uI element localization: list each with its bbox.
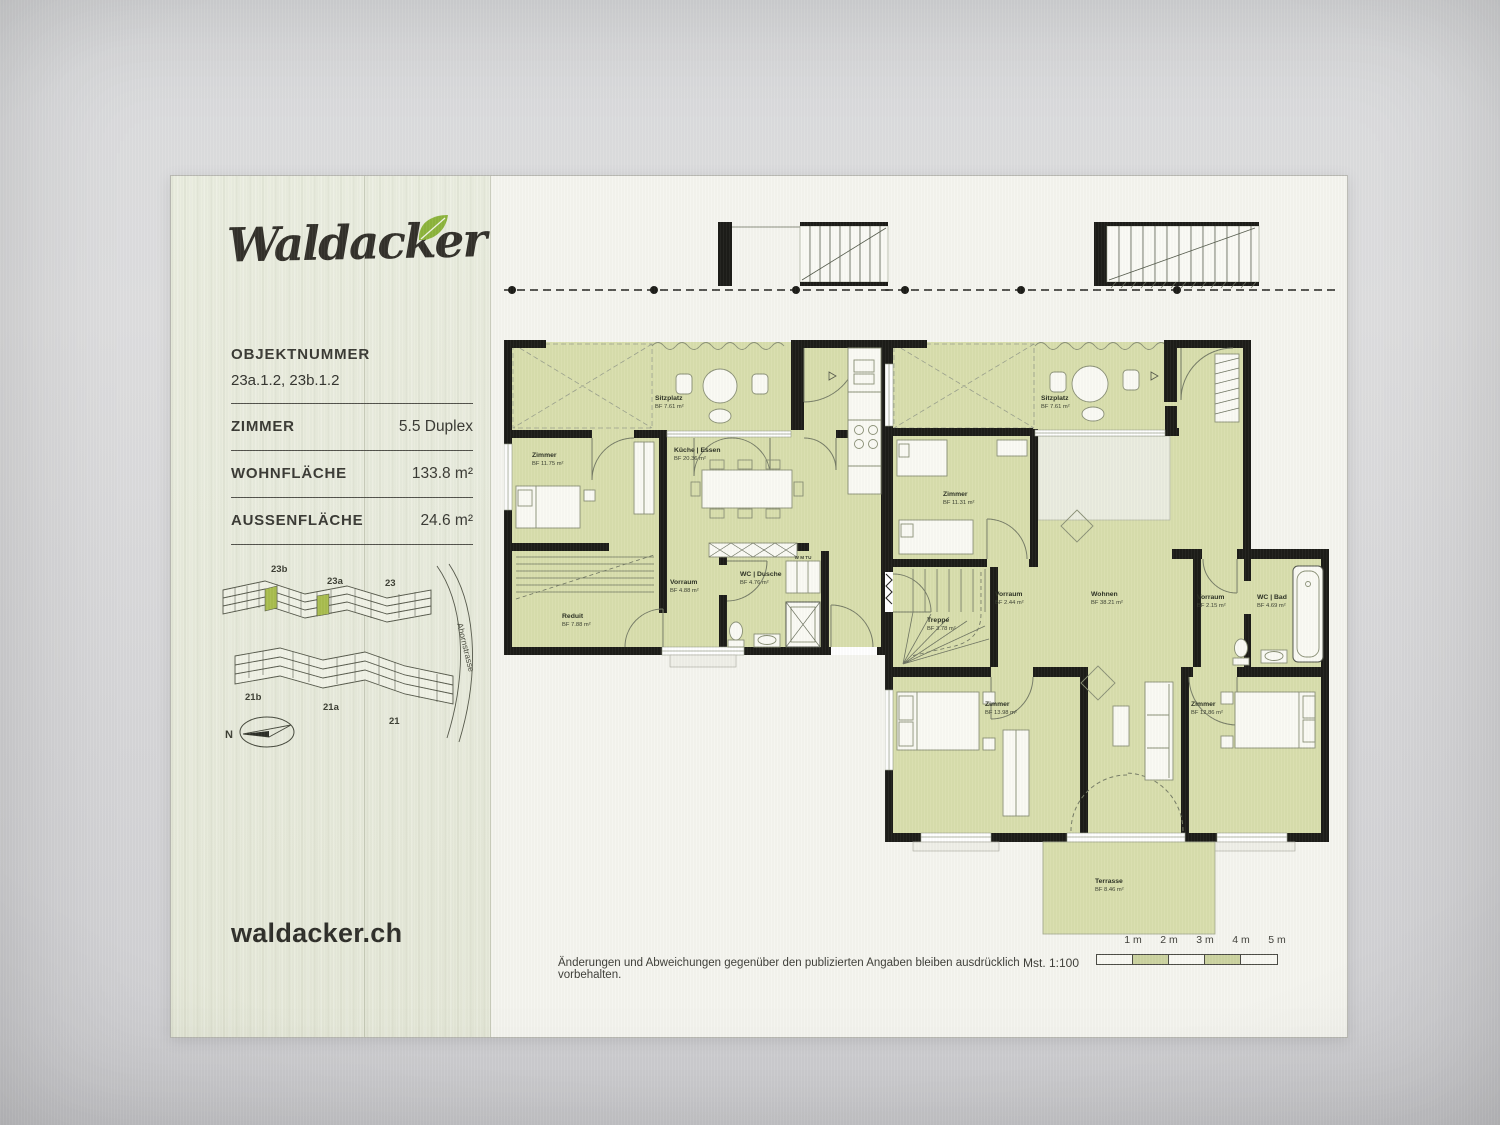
external-stair-icon	[718, 222, 888, 286]
building-label-21b: 21b	[245, 692, 262, 703]
street-curve	[437, 566, 460, 738]
room-label-vorraum2: Vorraum	[1197, 594, 1224, 601]
spec-row-zimmer: ZIMMER 5.5 Duplex	[231, 418, 473, 436]
sidebar-wood-panel: Waldacker OBJEKTNUMMER 23a.1.2, 23b.1.2 …	[171, 176, 491, 1037]
divider	[231, 497, 473, 498]
spec-row-aussenflaeche: AUSSENFLÄCHE 24.6 m²	[231, 512, 473, 530]
svg-text:BF 4.88 m²: BF 4.88 m²	[670, 588, 699, 594]
svg-text:BF 12.86 m²: BF 12.86 m²	[1191, 710, 1223, 716]
bathtub-icon	[1293, 566, 1323, 662]
toilet-icon	[728, 622, 744, 647]
building-label-23a: 23a	[327, 576, 344, 587]
room-label-zimmer: Zimmer	[943, 491, 968, 498]
photographed-screen: Waldacker OBJEKTNUMMER 23a.1.2, 23b.1.2 …	[0, 0, 1500, 1125]
toilet-icon	[1233, 639, 1249, 665]
svg-text:BF 11.75 m²: BF 11.75 m²	[532, 461, 564, 467]
street-label: Ahornstrasse	[455, 622, 477, 673]
svg-text:BF 13.98 m²: BF 13.98 m²	[985, 710, 1017, 716]
compass-icon: N	[225, 717, 294, 747]
spec-value: 24.6 m²	[420, 512, 473, 530]
room-label-wohnen: Wohnen	[1091, 591, 1118, 598]
washbasin-icon	[1261, 650, 1287, 663]
room-label-treppe: Treppe	[927, 617, 950, 624]
svg-text:BF 11.31 m²: BF 11.31 m²	[943, 500, 975, 506]
scale-mark: 3 m	[1191, 934, 1219, 946]
divider	[231, 544, 473, 545]
room-label-wc-bad: WC | Bad	[1257, 594, 1287, 601]
building-label-23: 23	[385, 578, 396, 589]
floor-plan-left: Sitzplatz BF 7.61 m² Zimmer BF 11.75 m² …	[504, 214, 889, 676]
scale-bar: 1 m 2 m 3 m 4 m 5 m	[1096, 934, 1279, 972]
svg-text:BF 7.61 m²: BF 7.61 m²	[1041, 404, 1070, 410]
scale-label: Mst. 1:100	[1023, 956, 1079, 970]
room-label-sitzplatz: Sitzplatz	[1041, 395, 1069, 402]
unit-info-table: OBJEKTNUMMER 23a.1.2, 23b.1.2 ZIMMER 5.5…	[231, 346, 473, 545]
room-label-terrasse: Terrasse	[1095, 878, 1123, 885]
building-label-21a: 21a	[323, 702, 340, 713]
compass-n-label: N	[225, 729, 233, 741]
objektnummer-value: 23a.1.2, 23b.1.2	[231, 372, 473, 389]
svg-text:BF 38.21 m²: BF 38.21 m²	[1091, 600, 1123, 606]
void-luftraum	[1038, 436, 1170, 520]
highlighted-unit-23b	[265, 586, 277, 611]
washbasin-icon	[754, 634, 780, 647]
spec-label: WOHNFLÄCHE	[231, 465, 347, 482]
spec-row-wohnflaeche: WOHNFLÄCHE 133.8 m²	[231, 465, 473, 483]
svg-text:BF 4.69 m²: BF 4.69 m²	[1257, 603, 1286, 609]
builtin-cupboard-icon	[709, 543, 797, 557]
shower-icon	[786, 602, 820, 647]
room-label-sitzplatz: Sitzplatz	[655, 395, 683, 402]
external-stair-icon	[1094, 222, 1259, 288]
room-label-kueche-essen: Küche | Essen	[674, 447, 720, 454]
room-label-reduit: Reduit	[562, 613, 584, 620]
svg-text:BF 7.88 m²: BF 7.88 m²	[562, 622, 591, 628]
scale-mark: 1 m	[1119, 934, 1147, 946]
scale-bar-segments	[1096, 954, 1278, 965]
spec-value: 5.5 Duplex	[399, 418, 473, 436]
apartment-floor	[891, 342, 1327, 837]
scale-mark: 5 m	[1263, 934, 1291, 946]
room-label-vorraum: Vorraum	[670, 579, 697, 586]
appliance-label: W M TU	[795, 555, 813, 560]
highlighted-unit-23a	[317, 594, 329, 616]
coat-rack-icon	[1215, 354, 1239, 422]
terrace-area	[1043, 842, 1215, 934]
floorplan-sheet: Waldacker OBJEKTNUMMER 23a.1.2, 23b.1.2 …	[170, 175, 1348, 1038]
room-label-wc-dusche: WC | Dusche	[740, 571, 782, 578]
scale-mark: 2 m	[1155, 934, 1183, 946]
website-url: waldacker.ch	[231, 918, 402, 949]
floor-plan-right: Sitzplatz BF 7.61 m² Zimmer BF 11.31 m² …	[885, 214, 1337, 942]
svg-text:BF 2.15 m²: BF 2.15 m²	[1197, 603, 1226, 609]
room-label-zimmer2: Zimmer	[985, 701, 1010, 708]
room-label-zimmer3: Zimmer	[1191, 701, 1216, 708]
disclaimer-text: Änderungen und Abweichungen gegenüber de…	[558, 957, 1038, 981]
svg-text:BF 20.36 m²: BF 20.36 m²	[674, 456, 706, 462]
svg-text:BF 8.46 m²: BF 8.46 m²	[1095, 887, 1124, 893]
spec-label: ZIMMER	[231, 418, 295, 435]
spec-label: AUSSENFLÄCHE	[231, 512, 363, 529]
svg-text:BF 2.44 m²: BF 2.44 m²	[995, 600, 1024, 606]
kitchen-counter-icon	[848, 348, 881, 494]
spec-value: 133.8 m²	[412, 465, 473, 483]
entry-door-icon	[885, 572, 893, 612]
building-label-23b: 23b	[271, 564, 288, 575]
room-label-zimmer: Zimmer	[532, 452, 557, 459]
building-row-21	[235, 648, 453, 704]
site-plan-sketch: Ahornstrasse 23b 23a 23 21b 21a 21 N	[205, 548, 505, 770]
building-label-21: 21	[389, 716, 400, 727]
room-label-vorraum: Vorraum	[995, 591, 1022, 598]
divider	[231, 403, 473, 404]
washer-dryer-icon	[786, 561, 820, 593]
bed-icon	[1221, 692, 1315, 748]
objektnummer-label: OBJEKTNUMMER	[231, 346, 473, 363]
scale-mark: 4 m	[1227, 934, 1255, 946]
leaf-icon	[415, 212, 451, 244]
divider	[231, 450, 473, 451]
scale-marks: 1 m 2 m 3 m 4 m 5 m	[1096, 934, 1279, 950]
svg-text:BF 4.76 m²: BF 4.76 m²	[740, 580, 769, 586]
svg-text:BF 7.61 m²: BF 7.61 m²	[655, 404, 684, 410]
svg-text:BF 3.78 m²: BF 3.78 m²	[927, 626, 956, 632]
